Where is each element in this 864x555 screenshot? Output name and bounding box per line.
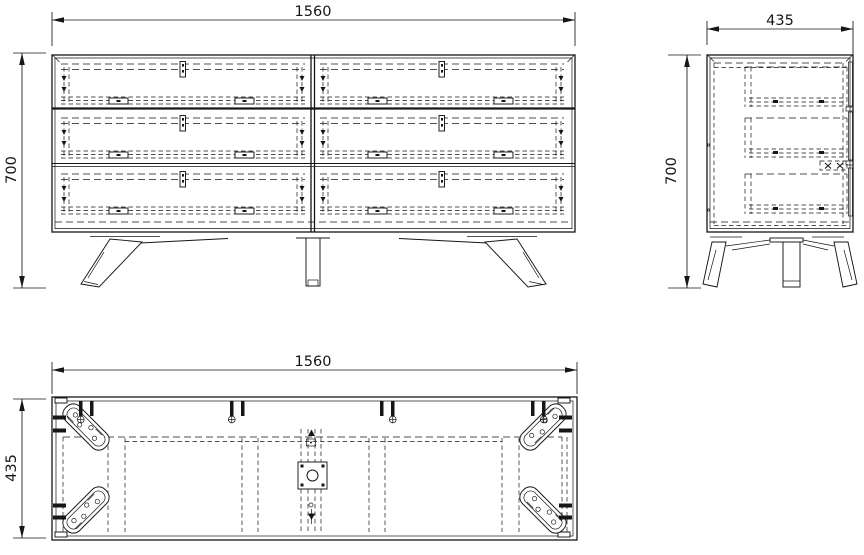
top-center-leg-plate [298, 429, 327, 533]
drawing-canvas: 1560 700 435 700 1560 435 [0, 0, 864, 555]
front-width-label: 1560 [295, 4, 332, 20]
top-depth-label: 435 [4, 454, 20, 482]
front-height-label: 700 [4, 156, 20, 184]
top-width-label: 1560 [295, 354, 332, 370]
front-left-leg [81, 239, 142, 287]
front-legs [81, 237, 546, 288]
top-screws [53, 401, 572, 520]
side-legs [703, 237, 857, 287]
side-height-label: 700 [664, 157, 680, 185]
dimension-front-height: 700 [4, 53, 46, 288]
side-width-label: 435 [766, 13, 794, 29]
technical-drawing: 1560 700 435 700 1560 435 [0, 0, 864, 555]
dimension-top-width: 1560 [52, 354, 577, 394]
front-right-leg [485, 239, 546, 287]
dimension-side-width: 435 [707, 13, 853, 56]
side-drawers [745, 62, 853, 216]
side-carcass [707, 55, 853, 232]
side-right-leg [834, 242, 857, 287]
dimension-top-depth: 435 [4, 399, 46, 538]
front-view [52, 55, 575, 287]
top-view [52, 397, 577, 540]
dimension-front-width: 1560 [52, 4, 575, 46]
dimension-side-height: 700 [664, 55, 701, 288]
front-drawers [61, 62, 564, 215]
side-left-leg [703, 242, 726, 287]
front-carcass [52, 55, 575, 232]
side-center-leg [783, 242, 800, 287]
side-view [703, 55, 857, 287]
front-center-leg [306, 238, 320, 286]
